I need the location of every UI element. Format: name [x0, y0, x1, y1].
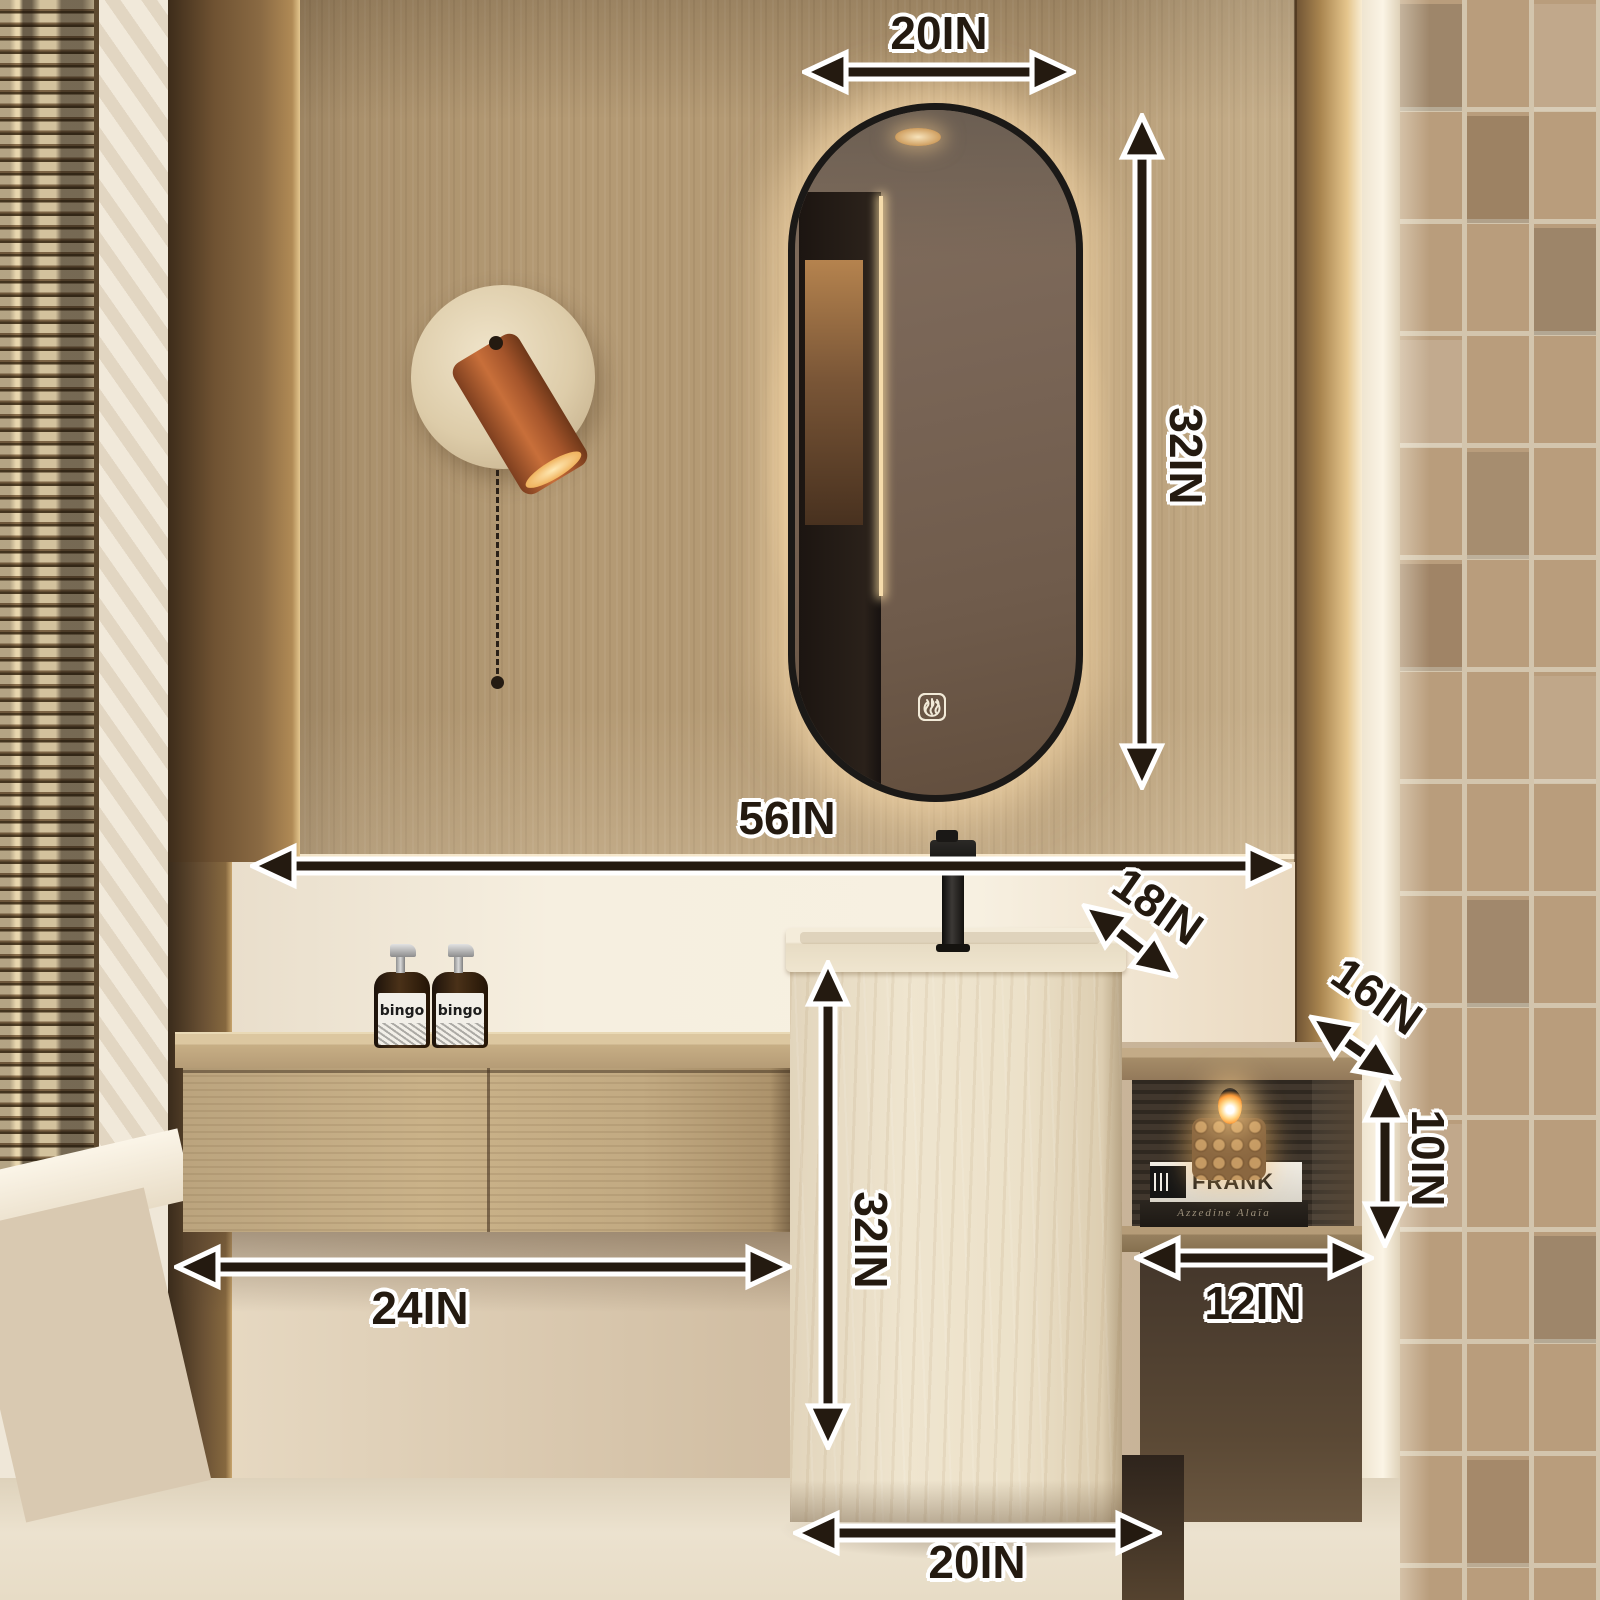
dim-label-wall-span: 56IN — [738, 795, 835, 841]
dim-label-shelf-width: 12IN — [1204, 1280, 1301, 1326]
arrow-shelf-depth — [1345, 1041, 1365, 1055]
dim-label-mirror-height: 32IN — [1163, 407, 1209, 504]
dim-label-shelf-opening-height: 10IN — [1405, 1109, 1451, 1206]
dim-label-basin-width: 20IN — [928, 1539, 1025, 1585]
dim-label-cabinet-width: 24IN — [371, 1285, 468, 1331]
scene: bingo bingo Azzedine Alaïa FRANK — [0, 0, 1600, 1600]
dim-label-basin-height: 32IN — [848, 1191, 894, 1288]
arrow-basin-depth — [1117, 931, 1143, 951]
dim-label-mirror-width: 20IN — [890, 10, 987, 56]
